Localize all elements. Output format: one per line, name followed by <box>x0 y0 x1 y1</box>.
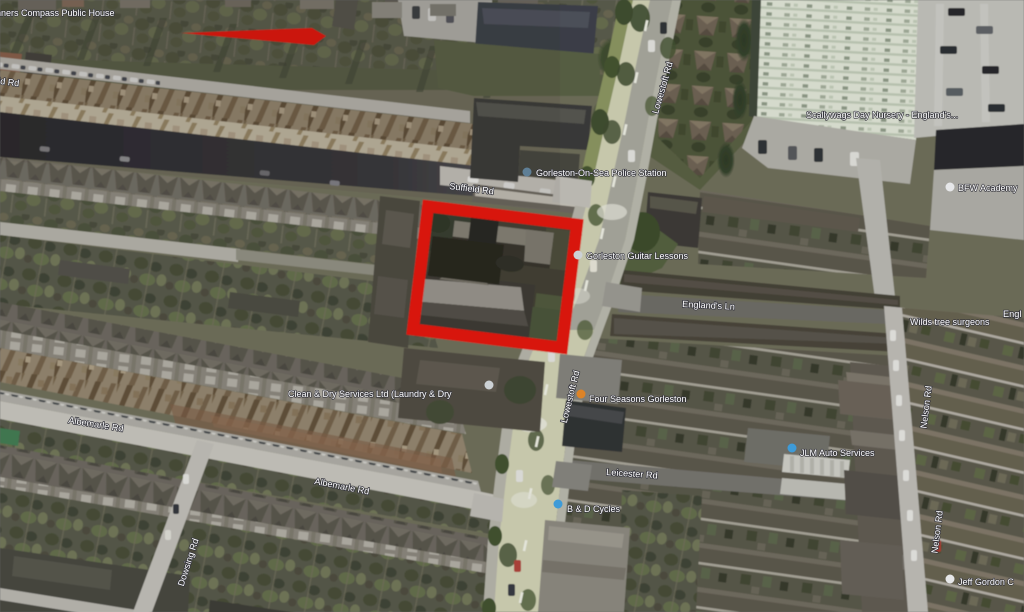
svg-text:Wilds tree surgeons: Wilds tree surgeons <box>910 317 990 327</box>
svg-text:Gorleston Guitar Lessons: Gorleston Guitar Lessons <box>586 251 689 261</box>
svg-text:Jeff Gordon C: Jeff Gordon C <box>958 577 1014 587</box>
svg-text:BFW Academy: BFW Academy <box>958 183 1018 193</box>
svg-text:Scallywags Day Nursery - Engla: Scallywags Day Nursery - England's... <box>806 110 958 120</box>
svg-text:nners Compass Public House: nners Compass Public House <box>0 8 115 18</box>
svg-text:Gorleston-On-Sea Police Statio: Gorleston-On-Sea Police Station <box>536 168 667 178</box>
svg-text:JLM Auto Services: JLM Auto Services <box>800 448 875 458</box>
svg-text:Engl: Engl <box>1003 309 1021 319</box>
svg-text:B & D Cycles: B & D Cycles <box>567 504 621 514</box>
svg-text:Four Seasons Gorleston: Four Seasons Gorleston <box>589 394 687 404</box>
svg-text:Clean & Dry Services Ltd (Laun: Clean & Dry Services Ltd (Laundry & Dry <box>288 389 452 399</box>
